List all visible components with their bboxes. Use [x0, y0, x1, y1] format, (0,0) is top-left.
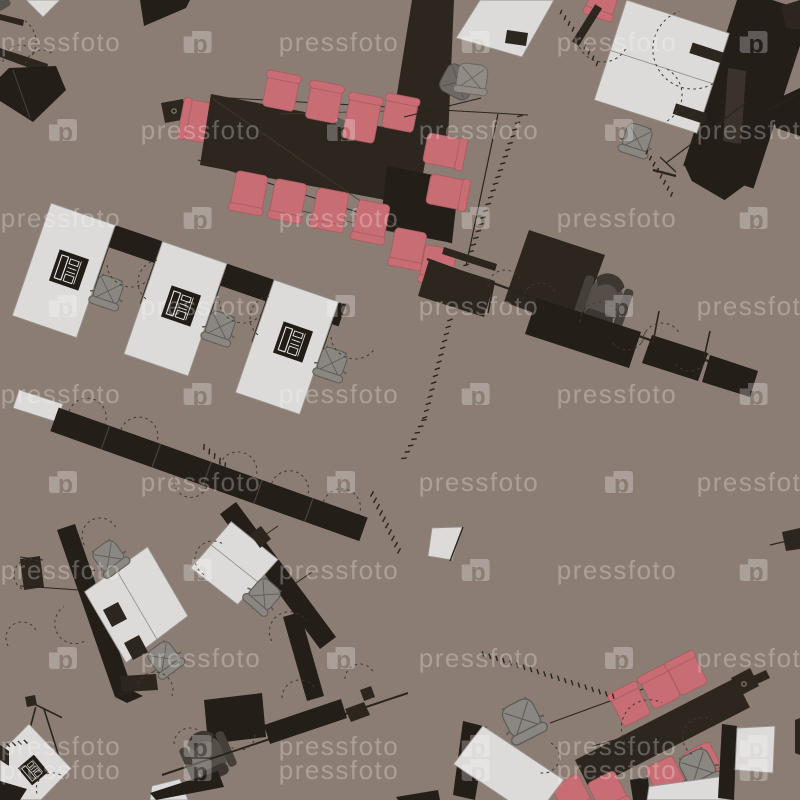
- svg-text:pressfoto: pressfoto: [697, 467, 800, 497]
- svg-text:pressfoto: pressfoto: [557, 555, 677, 585]
- svg-text:pressfoto: pressfoto: [1, 379, 121, 409]
- svg-text:pressfoto: pressfoto: [557, 27, 677, 57]
- svg-text:pressfoto: pressfoto: [141, 467, 261, 497]
- svg-text:pressfoto: pressfoto: [141, 643, 261, 673]
- svg-text:pressfoto: pressfoto: [1, 755, 121, 785]
- svg-text:pressfoto: pressfoto: [279, 555, 399, 585]
- svg-text:pressfoto: pressfoto: [419, 115, 539, 145]
- svg-text:pressfoto: pressfoto: [279, 755, 399, 785]
- svg-text:pressfoto: pressfoto: [419, 291, 539, 321]
- svg-text:pressfoto: pressfoto: [697, 291, 800, 321]
- svg-text:pressfoto: pressfoto: [557, 755, 677, 785]
- svg-text:pressfoto: pressfoto: [141, 291, 261, 321]
- svg-text:pressfoto: pressfoto: [697, 643, 800, 673]
- svg-text:pressfoto: pressfoto: [557, 203, 677, 233]
- svg-text:pressfoto: pressfoto: [1, 203, 121, 233]
- svg-text:pressfoto: pressfoto: [279, 379, 399, 409]
- svg-text:pressfoto: pressfoto: [279, 27, 399, 57]
- svg-text:pressfoto: pressfoto: [1, 555, 121, 585]
- svg-text:pressfoto: pressfoto: [557, 379, 677, 409]
- svg-text:pressfoto: pressfoto: [419, 467, 539, 497]
- svg-text:pressfoto: pressfoto: [279, 203, 399, 233]
- svg-text:pressfoto: pressfoto: [1, 27, 121, 57]
- svg-text:pressfoto: pressfoto: [697, 115, 800, 145]
- svg-text:pressfoto: pressfoto: [141, 115, 261, 145]
- svg-text:pressfoto: pressfoto: [419, 643, 539, 673]
